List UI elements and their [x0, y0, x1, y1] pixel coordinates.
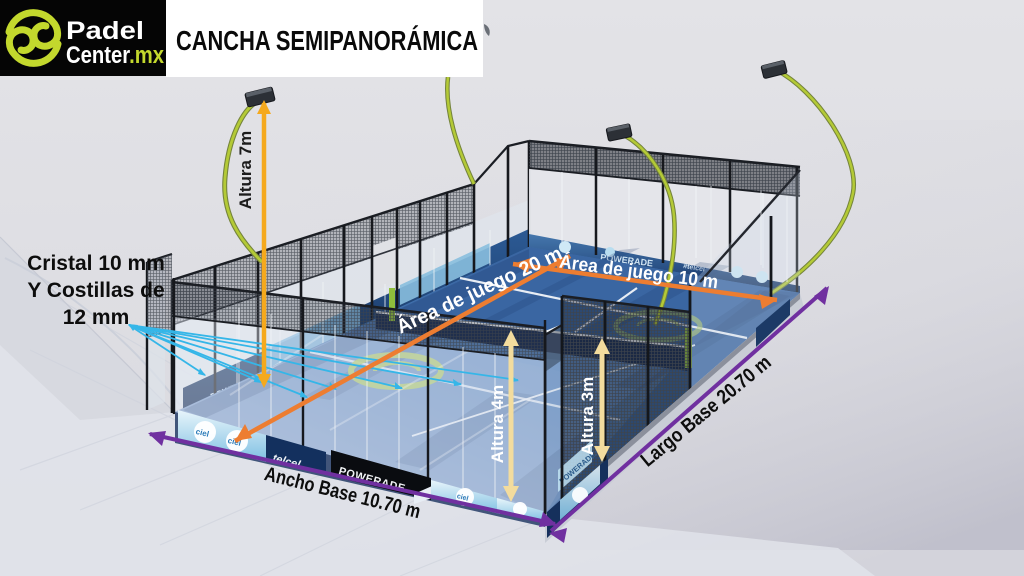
svg-text:Altura 4m: Altura 4m [488, 385, 507, 463]
svg-text:Altura 7m: Altura 7m [236, 131, 255, 209]
svg-text:Center.mx: Center.mx [66, 42, 165, 69]
svg-text:Altura 3m: Altura 3m [578, 377, 597, 455]
svg-text:Y Costillas de: Y Costillas de [27, 279, 164, 302]
svg-text:12 mm: 12 mm [63, 306, 130, 329]
svg-text:Cristal 10 mm: Cristal 10 mm [27, 252, 165, 275]
svg-text:CANCHA SEMIPANORÁMICA: CANCHA SEMIPANORÁMICA [176, 25, 478, 56]
svg-text:Padel: Padel [66, 17, 144, 45]
